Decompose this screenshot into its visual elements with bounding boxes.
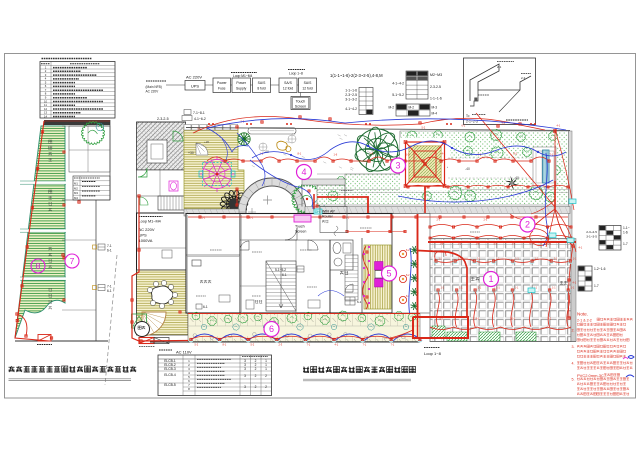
svg-text:1-1~1-6: 1-1~1-6 [430,97,442,101]
svg-text:Fuse: Fuse [218,87,226,91]
svg-text:M-2: M-2 [409,106,415,110]
svg-text:2-3: 2-3 [437,218,441,222]
svg-text:5.: 5. [572,378,575,382]
svg-text:M3: M3 [74,191,78,195]
svg-text:14: 14 [44,114,48,118]
svg-text:UPS: UPS [139,233,148,238]
svg-text:6-1: 6-1 [530,242,534,246]
svg-text:1-6: 1-6 [623,231,628,235]
svg-text:Screen: Screen [295,105,306,109]
svg-text:1-7: 1-7 [594,284,599,288]
svg-text:4-1~4-2: 4-1~4-2 [345,107,357,111]
svg-text:12 fold: 12 fold [283,87,293,91]
svg-text:UPS: UPS [191,83,200,88]
svg-text:6: 6 [269,324,274,334]
svg-text:24.6: 24.6 [183,117,189,121]
svg-text:SA/S: SA/S [258,81,266,85]
svg-text:Loop M1~M4: Loop M1~M4 [139,220,161,224]
svg-text:1-6: 1-6 [370,152,374,156]
svg-text:+20: +20 [204,140,209,144]
svg-text:1: 1 [265,367,267,371]
svg-text:ELCB-5: ELCB-5 [164,383,176,387]
svg-text:WiFi AP: WiFi AP [322,210,335,214]
svg-text:AC 220V: AC 220V [146,90,160,94]
svg-text:4-1: 4-1 [442,152,446,156]
svg-text:To: To [466,114,470,118]
svg-text:-40: -40 [465,167,470,171]
svg-text:6-1: 6-1 [462,124,466,128]
svg-text:6-1: 6-1 [203,305,208,309]
svg-text:2-3-2-5: 2-3-2-5 [430,85,441,89]
svg-text:6-1: 6-1 [512,317,516,321]
svg-text:3: 3 [244,367,246,371]
svg-text:-40: -40 [514,176,519,180]
svg-text:1-1~1-6: 1-1~1-6 [345,89,357,93]
svg-text:Note.: Note. [577,312,588,317]
svg-text:2: 2 [265,385,267,389]
svg-text:2-1: 2-1 [497,65,502,69]
svg-text:+30: +30 [188,151,194,155]
svg-text:7-1: 7-1 [107,285,112,289]
svg-text:5-2: 5-2 [406,153,410,157]
svg-text:4-1: 4-1 [557,124,561,128]
svg-text:ELCB-4: ELCB-4 [164,373,176,377]
svg-text:1: 1 [488,274,493,284]
svg-text:1000VA: 1000VA [139,238,153,243]
svg-text:(Main NFB): (Main NFB) [146,85,162,89]
svg-text:AC 110V: AC 110V [176,350,192,355]
svg-text:DH: DH [315,210,320,214]
svg-text:5: 5 [386,269,391,279]
svg-text:4-1: 4-1 [476,317,480,321]
svg-text:4.: 4. [572,362,575,366]
svg-text:1-1: 1-1 [512,242,516,246]
svg-text:ELCB-3: ELCB-3 [164,367,176,371]
svg-text:8 fold: 8 fold [257,87,265,91]
svg-text:7-1~8-1: 7-1~8-1 [193,111,205,115]
svg-text:8-1: 8-1 [198,127,202,131]
svg-text:2: 2 [255,374,257,378]
svg-text:AC 220V: AC 220V [139,227,155,232]
svg-text:4: 4 [301,167,306,177]
svg-text:2: 2 [525,220,530,230]
svg-text:5-2: 5-2 [251,343,255,347]
svg-text:1-1: 1-1 [202,216,206,220]
svg-text:4-1: 4-1 [335,343,339,347]
svg-text:2-3: 2-3 [279,343,283,347]
svg-text:Supply: Supply [236,87,247,91]
svg-text:6-1: 6-1 [357,300,362,304]
svg-text:5-2: 5-2 [494,242,498,246]
svg-text:7-1: 7-1 [391,343,395,347]
svg-text:2-3: 2-3 [484,218,488,222]
svg-text:5-2: 5-2 [195,343,199,347]
svg-text:6-1: 6-1 [107,289,112,293]
svg-text:2: 2 [265,374,267,378]
svg-text:M-3: M-3 [432,106,438,110]
svg-text:Loop 1~8: Loop 1~8 [289,72,303,76]
svg-text:6-1: 6-1 [282,273,287,277]
svg-text:PVC2.0mm-3C: PVC2.0mm-3C [577,373,604,378]
svg-text:Router: Router [322,215,334,219]
svg-text:8: 8 [36,261,41,271]
svg-text:SA/S: SA/S [284,81,292,85]
svg-text:5-2: 5-2 [440,317,444,321]
svg-text:4-1~6-2: 4-1~6-2 [194,117,206,121]
svg-text:1-1: 1-1 [346,216,350,220]
svg-text:2-3~2-5: 2-3~2-5 [586,230,597,234]
svg-text:8-1: 8-1 [223,343,227,347]
svg-text:Screen: Screen [295,230,306,234]
svg-text:6-1: 6-1 [107,249,112,253]
svg-text:1-6: 1-6 [440,242,444,246]
svg-text:4-1: 4-1 [573,281,577,285]
svg-text:3-1~3-2: 3-1~3-2 [345,98,357,102]
svg-text:2-1 & 2-2: 2-1 & 2-2 [577,319,592,323]
svg-text:M1: M1 [74,182,78,186]
svg-text:5-1~5-2: 5-1~5-2 [392,93,404,97]
svg-text:7: 7 [70,256,75,266]
svg-text:3: 3 [395,161,400,171]
svg-text:4-1: 4-1 [579,246,583,250]
svg-text:Power: Power [217,81,227,85]
svg-text:Loop M1~M4: Loop M1~M4 [233,74,253,78]
svg-text:5-2: 5-2 [422,126,426,130]
svg-text:1-2~1-6: 1-2~1-6 [594,267,606,271]
svg-text:Touch: Touch [296,100,306,104]
svg-text:3.: 3. [572,345,575,349]
svg-text:5-2: 5-2 [548,317,552,321]
svg-text:1-1~: 1-1~ [623,226,630,230]
svg-text:2-3-2-5: 2-3-2-5 [157,117,169,121]
svg-text:Loop 1~8: Loop 1~8 [424,351,442,356]
svg-text:Power: Power [236,81,246,85]
svg-text:3: 3 [244,385,246,389]
svg-text:M4: M4 [74,196,78,200]
svg-text:8-1: 8-1 [514,152,518,156]
svg-text:1-1: 1-1 [548,242,552,246]
svg-text:M2~M3: M2~M3 [430,73,442,77]
svg-text:Touch: Touch [295,225,305,229]
svg-text:6-1: 6-1 [250,216,254,220]
svg-text:1(1-1~1-6)-2(2-3~2-5),4-8,M: 1(1-1~1-6)-2(2-3~2-5),4-8,M [330,73,383,78]
svg-text:M-4: M-4 [432,112,438,116]
svg-text:7-1: 7-1 [363,343,367,347]
svg-text:1-6: 1-6 [476,242,480,246]
svg-text:1-7: 1-7 [623,242,628,246]
svg-text:4-1~4-2: 4-1~4-2 [392,82,404,86]
svg-text:7-1: 7-1 [107,244,112,248]
svg-text:AC 220V: AC 220V [186,75,202,80]
svg-text:2-3~2-5: 2-3~2-5 [345,93,357,97]
svg-text:2: 2 [255,367,257,371]
svg-text:2.: 2. [572,329,575,333]
svg-text:3-1~3-5: 3-1~3-5 [586,235,597,239]
svg-text:M-2: M-2 [389,106,395,110]
svg-text:3: 3 [244,374,246,378]
svg-text:5-1~5-2: 5-1~5-2 [275,268,286,272]
svg-text:1-1: 1-1 [458,242,462,246]
svg-text:2-3: 2-3 [521,76,526,80]
svg-text:7-1: 7-1 [307,343,311,347]
svg-text:2: 2 [255,385,257,389]
svg-text:1-6: 1-6 [334,153,338,157]
svg-text:SA/S: SA/S [304,81,312,85]
svg-text:M2: M2 [74,186,78,190]
svg-text:12 fold: 12 fold [302,87,312,91]
svg-text:8-1: 8-1 [298,152,302,156]
